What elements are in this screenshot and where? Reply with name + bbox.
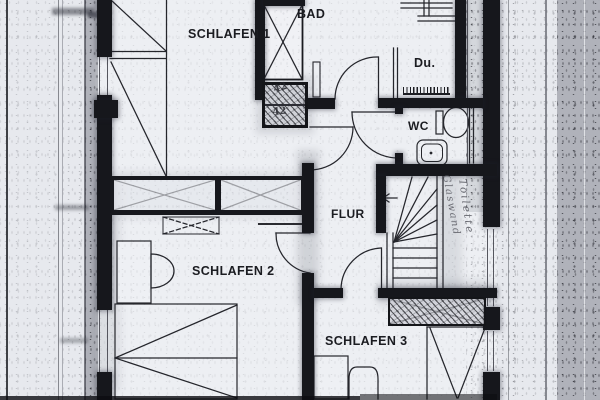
wall-left-top [97, 0, 112, 57]
wall-stair-top [376, 164, 497, 176]
wall-left-pier [94, 100, 118, 118]
label-dusche: Du. [414, 56, 435, 70]
wall-flur-west-lower [302, 273, 314, 400]
wc-side-lines [470, 102, 474, 163]
label-flur: FLUR [331, 207, 365, 221]
label-bad: BAD [297, 7, 325, 21]
bad-fixtures [313, 0, 457, 97]
understair-storage [388, 297, 486, 326]
chimney-flue-mark-2: 42 [272, 106, 287, 118]
label-schlafen1: SCHLAFEN 1 [188, 27, 270, 41]
schlafen3-washstand [314, 356, 378, 399]
label-schlafen2: SCHLAFEN 2 [192, 264, 274, 278]
wc-door [352, 112, 398, 158]
wall-right-top [483, 0, 500, 227]
dusche-radiator [403, 87, 450, 95]
chimney-cap [263, 0, 305, 6]
wall-bad-bottom-right [378, 98, 483, 108]
wall-dusche-right [455, 0, 466, 98]
label-schlafen3: SCHLAFEN 3 [325, 334, 407, 348]
wall-schlafen3-top-stub [314, 288, 343, 298]
dashed-dresser [163, 217, 219, 234]
schlafen1-door [310, 127, 353, 170]
staircase [387, 176, 443, 290]
schlafen2-bed [115, 304, 237, 399]
bad-door [335, 57, 379, 99]
bottom-scan-streak-1 [0, 396, 360, 400]
schlafen3-door [341, 248, 382, 290]
schlafen1-wardrobe [110, 0, 167, 177]
closet-row-box-1 [111, 176, 218, 215]
schlafen2-door [276, 233, 310, 273]
wall-stair-left [376, 176, 386, 233]
wc-toilet [436, 108, 469, 138]
wall-left-mid [97, 95, 112, 310]
wall-wc-left-stub-top [395, 108, 403, 114]
schlafen2-washstand [117, 241, 174, 303]
label-wc: WC [408, 119, 429, 133]
schlafen3-wardrobe [427, 327, 486, 399]
shower-partition [394, 3, 453, 98]
bottom-scan-streak-2 [360, 394, 497, 400]
wc-washbasin [417, 140, 447, 165]
floorplan-scan: 42 42 SCHLAFEN 1 BAD Du. WC FLUR SCHLAFE… [0, 0, 600, 400]
closet-row-box-2 [217, 176, 304, 215]
